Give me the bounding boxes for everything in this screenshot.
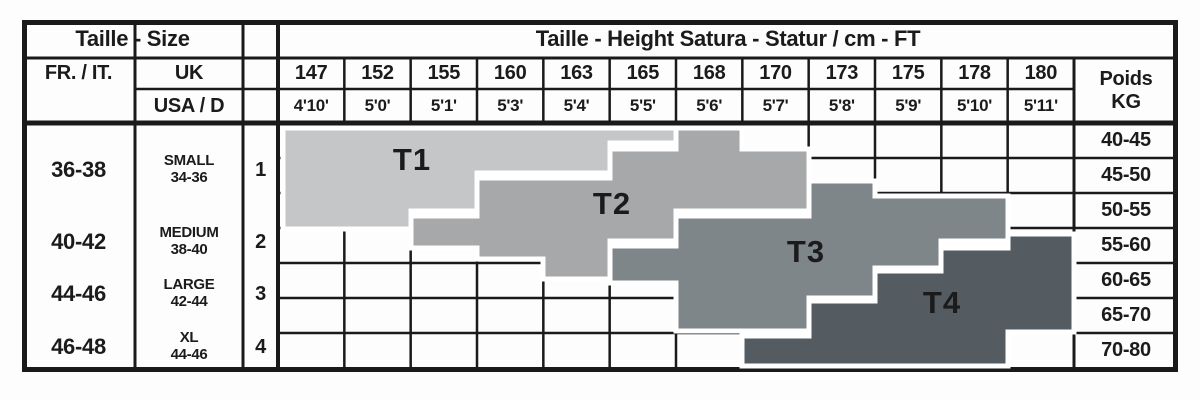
weight-cell: 70-80 xyxy=(1074,333,1178,368)
height-cm-cell: 178 xyxy=(941,58,1007,89)
weight-cell: 45-50 xyxy=(1074,158,1178,193)
weight-unit: KG xyxy=(1111,91,1140,113)
size-index-cell: 3 xyxy=(243,277,278,311)
weight-cell: 65-70 xyxy=(1074,298,1178,333)
col-header-weight: Poids KG xyxy=(1074,58,1178,123)
weight-title: Poids xyxy=(1100,68,1153,90)
height-cm-cell: 173 xyxy=(809,58,875,89)
height-cm-cell: 168 xyxy=(676,58,742,89)
band-label-t2: T2 xyxy=(593,186,631,222)
size-index-cell: 4 xyxy=(243,330,278,364)
size-index-cell: 2 xyxy=(243,225,278,259)
size-label-cell: LARGE42-44 xyxy=(135,275,243,313)
height-cm-cell: 160 xyxy=(477,58,543,89)
weight-cell: 40-45 xyxy=(1074,123,1178,158)
size-fr-it-cell: 44-46 xyxy=(22,277,135,311)
height-ft-cell: 5'0' xyxy=(344,89,410,123)
weight-cell: 50-55 xyxy=(1074,193,1178,228)
height-ft-cell: 5'10' xyxy=(941,89,1007,123)
size-uk-range: 44-46 xyxy=(171,347,208,364)
size-uk-range: 42-44 xyxy=(171,294,208,311)
size-label-cell: SMALL34-36 xyxy=(135,151,243,189)
size-label-cell: MEDIUM38-40 xyxy=(135,223,243,261)
height-ft-cell: 5'8' xyxy=(809,89,875,123)
height-ft-cell: 5'4' xyxy=(543,89,609,123)
size-fr-it-cell: 36-38 xyxy=(22,153,135,187)
band-label-t4: T4 xyxy=(923,285,961,321)
height-ft-cell: 5'5' xyxy=(610,89,676,123)
height-ft-cell: 4'10' xyxy=(278,89,344,123)
weight-cell: 60-65 xyxy=(1074,263,1178,298)
col-header-usa-d: USA / D xyxy=(135,89,243,123)
height-cm-cell: 155 xyxy=(411,58,477,89)
band-label-t3: T3 xyxy=(787,234,825,270)
col-header-uk: UK xyxy=(135,58,243,89)
height-ft-cell: 5'6' xyxy=(676,89,742,123)
height-cm-cell: 147 xyxy=(278,58,344,89)
height-ft-cell: 5'1' xyxy=(411,89,477,123)
size-name: XL xyxy=(180,330,199,347)
height-ft-cell: 5'9' xyxy=(875,89,941,123)
size-fr-it-cell: 46-48 xyxy=(22,330,135,364)
height-cm-cell: 165 xyxy=(610,58,676,89)
height-cm-cell: 180 xyxy=(1008,58,1074,89)
height-cm-cell: 163 xyxy=(543,58,609,89)
size-uk-range: 38-40 xyxy=(171,242,208,259)
height-cm-cell: 175 xyxy=(875,58,941,89)
height-cm-cell: 170 xyxy=(742,58,808,89)
height-title: Taille - Height Satura - Statur / cm - F… xyxy=(278,20,1178,58)
height-cm-cell: 152 xyxy=(344,58,410,89)
size-label-cell: XL44-46 xyxy=(135,328,243,366)
size-fr-it-cell: 40-42 xyxy=(22,225,135,259)
weight-cell: 55-60 xyxy=(1074,228,1178,263)
size-uk-range: 34-36 xyxy=(171,170,208,187)
height-ft-cell: 5'3' xyxy=(477,89,543,123)
height-ft-cell: 5'11' xyxy=(1008,89,1074,123)
size-title: Taille - Size xyxy=(22,20,243,58)
height-ft-cell: 5'7' xyxy=(742,89,808,123)
size-name: LARGE xyxy=(163,277,214,294)
band-label-t1: T1 xyxy=(393,142,431,178)
size-name: SMALL xyxy=(164,153,214,170)
size-chart: Taille - Size Taille - Height Satura - S… xyxy=(0,0,1200,400)
size-index-cell: 1 xyxy=(243,153,278,187)
col-header-fr-it: FR. / IT. xyxy=(22,58,135,89)
size-name: MEDIUM xyxy=(159,225,218,242)
